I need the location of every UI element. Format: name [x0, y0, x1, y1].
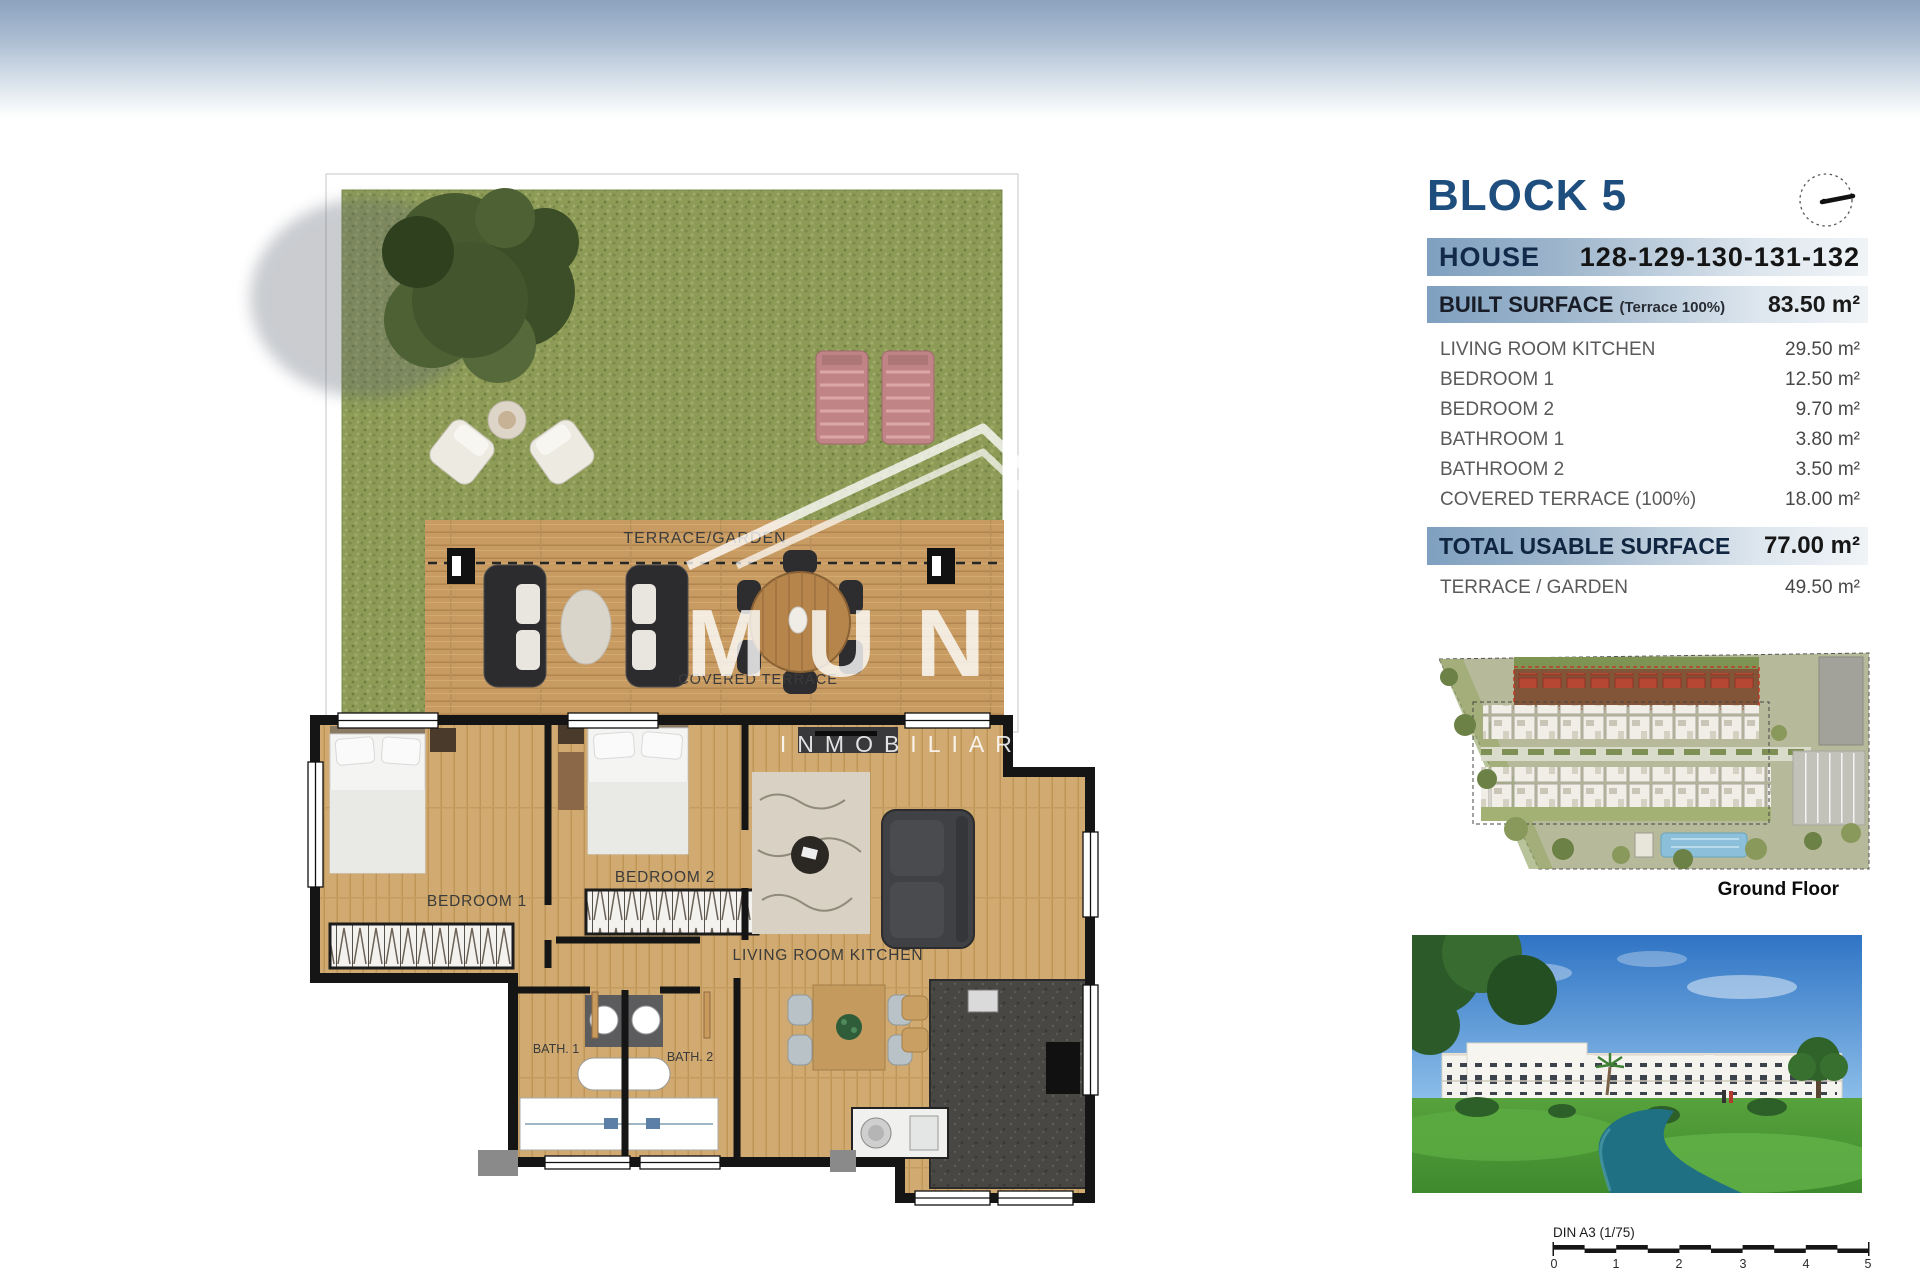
- row-label: BEDROOM 1: [1440, 369, 1554, 391]
- pool: [1661, 833, 1747, 857]
- row-value: 18.00 m²: [1785, 489, 1860, 511]
- compass-icon: [1792, 168, 1858, 234]
- terrace-row-label: TERRACE / GARDEN: [1440, 577, 1628, 599]
- built-surface-note: (Terrace 100%): [1620, 299, 1726, 316]
- terrace-garden-row: TERRACE / GARDEN 49.50 m²: [1427, 573, 1868, 603]
- bedroom1-wardrobe: [330, 924, 513, 968]
- scale-segments: [1553, 1242, 1870, 1256]
- row-label: BATHROOM 1: [1440, 429, 1564, 451]
- scale-tick: 1: [1613, 1257, 1620, 1271]
- scale-tick: 3: [1740, 1257, 1747, 1271]
- house-band: HOUSE 128-129-130-131-132: [1427, 238, 1868, 276]
- terrace-row-value: 49.50 m²: [1785, 577, 1860, 599]
- table-row: BEDROOM 1 12.50 m²: [1440, 365, 1860, 395]
- total-band: TOTAL USABLE SURFACE 77.00 m²: [1427, 527, 1868, 565]
- scale-tick: 4: [1803, 1257, 1810, 1271]
- interior: [308, 713, 1098, 1205]
- scale-ticks: 0 1 2 3 4 5: [1551, 1257, 1872, 1271]
- row-value: 9.70 m²: [1796, 399, 1860, 421]
- entry-step2: [830, 1150, 856, 1172]
- watermark-subtext: INMOBILIARIA I: [780, 731, 1100, 757]
- table-row: LIVING ROOM KITCHEN 29.50 m²: [1440, 335, 1860, 365]
- table-row: BEDROOM 2 9.70 m²: [1440, 395, 1860, 425]
- bath1-label: BATH. 1: [533, 1042, 579, 1056]
- built-surface-band: BUILT SURFACE (Terrace 100%) 83.50 m²: [1427, 286, 1868, 323]
- built-surface-label: BUILT SURFACE (Terrace 100%): [1439, 292, 1725, 318]
- row-label: BEDROOM 2: [1440, 399, 1554, 421]
- built-surface-value: 83.50 m²: [1768, 291, 1860, 318]
- scale-tick: 2: [1676, 1257, 1683, 1271]
- entry-step: [478, 1150, 518, 1176]
- row-value: 3.80 m²: [1796, 429, 1860, 451]
- row-value: 3.50 m²: [1796, 459, 1860, 481]
- deck-post-right: [927, 548, 955, 584]
- info-panel: BLOCK 5 HOUSE 128-129-130-131-132 BUILT …: [1427, 168, 1868, 1271]
- site-plan: Ground Floor: [1421, 647, 1873, 909]
- watermark-text: MUNF: [686, 590, 1123, 697]
- bedroom1-label: BEDROOM 1: [427, 893, 527, 910]
- total-value: 77.00 m²: [1764, 532, 1860, 560]
- bath2-label: BATH. 2: [667, 1050, 713, 1064]
- scale-label: DIN A3 (1/75): [1553, 1225, 1635, 1240]
- house-label: HOUSE: [1439, 242, 1540, 273]
- sofa: [882, 810, 974, 948]
- title-row: BLOCK 5: [1427, 168, 1868, 232]
- row-label: COVERED TERRACE (100%): [1440, 489, 1696, 511]
- property-photo: [1412, 935, 1862, 1193]
- row-value: 12.50 m²: [1785, 369, 1860, 391]
- ground-floor-caption: Ground Floor: [1718, 879, 1840, 900]
- bedroom2-wardrobe: [586, 890, 758, 934]
- table-row: BATHROOM 1 3.80 m²: [1440, 425, 1860, 455]
- scale-tick: 0: [1551, 1257, 1558, 1271]
- deck-post-left: [447, 548, 475, 584]
- row-value: 29.50 m²: [1785, 339, 1860, 361]
- table-row: COVERED TERRACE (100%) 18.00 m²: [1440, 485, 1860, 515]
- scale-tick: 5: [1865, 1257, 1872, 1271]
- scale-bar: DIN A3 (1/75) 0 1 2 3 4 5: [1551, 1223, 1881, 1271]
- living-room-label: LIVING ROOM KITCHEN: [733, 947, 924, 964]
- page: TERRACE/GARDEN COVERED TERRACE BEDROOM 1…: [0, 0, 1920, 1280]
- bedroom2-label: BEDROOM 2: [615, 869, 715, 886]
- house-numbers: 128-129-130-131-132: [1580, 242, 1860, 273]
- total-label: TOTAL USABLE SURFACE: [1439, 533, 1730, 560]
- row-label: BATHROOM 2: [1440, 459, 1564, 481]
- table-row: BATHROOM 2 3.50 m²: [1440, 455, 1860, 485]
- row-label: LIVING ROOM KITCHEN: [1440, 339, 1655, 361]
- laundry-unit: [852, 1108, 948, 1158]
- surface-rows: LIVING ROOM KITCHEN 29.50 m² BEDROOM 1 1…: [1427, 323, 1868, 521]
- built-surface-title: BUILT SURFACE: [1439, 292, 1613, 317]
